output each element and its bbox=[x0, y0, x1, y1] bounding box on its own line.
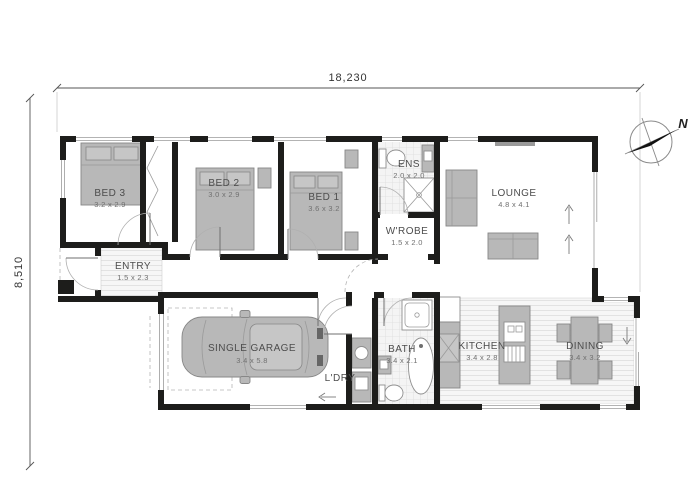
car-taillight bbox=[317, 328, 323, 339]
laundry-garage-door bbox=[324, 306, 352, 334]
stove bbox=[438, 334, 459, 362]
wrobe-dims: 1.5 x 2.0 bbox=[391, 238, 422, 247]
car-taillight bbox=[317, 355, 323, 366]
garage-arrow bbox=[319, 393, 336, 401]
south-wall bbox=[158, 404, 640, 410]
bed2-dims: 3.0 x 2.9 bbox=[208, 190, 239, 199]
car-mirror bbox=[240, 311, 250, 318]
west-window bbox=[60, 160, 66, 198]
height-dim-label: 8,510 bbox=[13, 256, 25, 288]
tv-unit bbox=[495, 142, 535, 146]
bed2-label: BED 2 bbox=[208, 178, 239, 189]
porch-post bbox=[58, 280, 74, 294]
lounge-dims: 4.8 x 4.1 bbox=[498, 200, 529, 209]
dining-label: DINING bbox=[566, 341, 604, 352]
garage-label: SINGLE GARAGE bbox=[208, 343, 296, 354]
bed1-nightstand bbox=[345, 150, 358, 168]
bed1-label: BED 1 bbox=[308, 192, 339, 203]
dining-chair bbox=[599, 361, 612, 379]
bath-toilet-bowl bbox=[385, 385, 403, 401]
dining-north-window bbox=[604, 296, 628, 302]
kitchen-dims: 3.4 x 2.8 bbox=[466, 353, 497, 362]
bath-dims: 3.4 x 2.1 bbox=[386, 356, 417, 365]
ens-toilet-tank bbox=[379, 149, 386, 168]
north-wall bbox=[60, 136, 598, 142]
garage-door bbox=[157, 314, 165, 390]
lounge-label: LOUNGE bbox=[492, 188, 537, 199]
dining-slider-door bbox=[634, 318, 640, 386]
bed1-dims: 3.6 x 3.2 bbox=[308, 204, 339, 213]
ens-label: ENS bbox=[398, 159, 420, 170]
bed3-dims: 3.2 x 2.9 bbox=[94, 200, 125, 209]
sofa-vertical bbox=[446, 170, 477, 226]
bath-toilet-tank bbox=[379, 385, 385, 401]
garage-dims: 3.4 x 5.8 bbox=[236, 356, 267, 365]
ens-basin bbox=[424, 151, 432, 161]
height-dimension: 8,510 bbox=[13, 94, 34, 470]
sofa-horizontal bbox=[488, 233, 538, 259]
ens-shower bbox=[404, 178, 434, 212]
compass: N bbox=[625, 116, 688, 166]
wrobe-label: W'ROBE bbox=[386, 226, 428, 237]
floor-plan-drawing: BED 3 3.2 x 2.9 BED 2 3.0 x 2.9 BED 1 3.… bbox=[0, 0, 700, 500]
garage-hall-door bbox=[318, 298, 346, 326]
kitchen-label: KITCHEN bbox=[458, 341, 505, 352]
compass-n-label: N bbox=[678, 116, 688, 131]
entry-dims: 1.5 x 2.3 bbox=[117, 273, 148, 282]
fridge bbox=[437, 297, 460, 322]
dining-dims: 3.4 x 3.2 bbox=[569, 353, 600, 362]
dining-chair bbox=[557, 361, 570, 379]
floor-plan-page: BED 3 3.2 x 2.9 BED 2 3.0 x 2.9 BED 1 3.… bbox=[0, 0, 700, 500]
dishwasher bbox=[504, 346, 525, 362]
laundry-appliances bbox=[352, 338, 371, 402]
dining-chair bbox=[599, 324, 612, 342]
entry-label: ENTRY bbox=[115, 261, 151, 272]
ldry-label: L'DRY bbox=[325, 373, 356, 384]
ens-dims: 2.0 x 2.0 bbox=[393, 171, 424, 180]
width-dim-label: 18,230 bbox=[328, 72, 367, 84]
bed3-label: BED 3 bbox=[94, 188, 125, 199]
lounge-slider-door bbox=[592, 172, 598, 268]
car-mirror bbox=[240, 377, 250, 384]
bath-label: BATH bbox=[388, 344, 416, 355]
bed1-nightstand bbox=[345, 232, 358, 250]
lounge-slider-arrow bbox=[565, 205, 573, 254]
dining-chair bbox=[557, 324, 570, 342]
bath-shower bbox=[402, 300, 432, 330]
closet-bifold-doors bbox=[147, 146, 158, 236]
